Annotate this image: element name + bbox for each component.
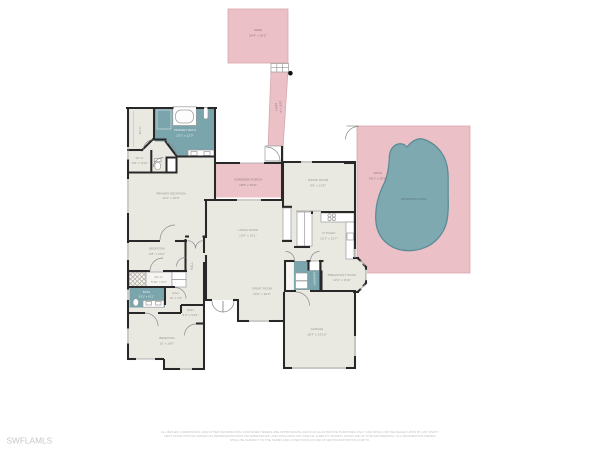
svg-text:LAUNDRY: LAUNDRY bbox=[313, 271, 317, 285]
svg-text:BREAKFAST NOOK: BREAKFAST NOOK bbox=[328, 273, 357, 277]
svg-text:W.I.C.: W.I.C. bbox=[138, 126, 142, 135]
svg-text:19'5" x 9'10": 19'5" x 9'10" bbox=[239, 183, 257, 187]
svg-text:SWFLAMLS: SWFLAMLS bbox=[7, 436, 53, 446]
svg-text:5'10" x 5'3": 5'10" x 5'3" bbox=[151, 280, 167, 284]
svg-text:10'1" x 12'3": 10'1" x 12'3" bbox=[176, 134, 194, 138]
svg-text:50'1" x 28'5": 50'1" x 28'5" bbox=[369, 177, 387, 181]
svg-text:HALL: HALL bbox=[190, 262, 194, 271]
svg-text:HALL: HALL bbox=[172, 291, 180, 295]
svg-text:18'4" x 19'10": 18'4" x 19'10" bbox=[307, 333, 327, 337]
svg-text:11'6" x 15'5": 11'6" x 15'5" bbox=[162, 196, 180, 200]
svg-text:SHED: SHED bbox=[254, 28, 262, 32]
svg-text:10' x 3'4": 10' x 3'4" bbox=[169, 296, 182, 300]
svg-text:BEDROOM: BEDROOM bbox=[159, 336, 175, 340]
svg-text:PATIO: PATIO bbox=[374, 171, 383, 175]
svg-text:KITCHEN: KITCHEN bbox=[323, 231, 336, 235]
svg-text:GREAT ROOM: GREAT ROOM bbox=[252, 287, 272, 291]
svg-text:10' x 19'6": 10' x 19'6" bbox=[160, 342, 175, 346]
svg-text:PATH: PATH bbox=[274, 103, 279, 111]
svg-text:10'1" x 12'7": 10'1" x 12'7" bbox=[320, 237, 338, 241]
svg-text:DINING ROOM: DINING ROOM bbox=[308, 178, 329, 182]
svg-text:SHALL BE SUBJECT TO THE TERMS: SHALL BE SUBJECT TO THE TERMS AND CONDIT… bbox=[230, 438, 370, 442]
svg-text:PRIMARY BATH: PRIMARY BATH bbox=[174, 128, 196, 132]
svg-text:5'6" x 9'10": 5'6" x 9'10" bbox=[132, 161, 148, 165]
svg-text:LIVING ROOM: LIVING ROOM bbox=[238, 228, 258, 232]
svg-text:DEN: DEN bbox=[187, 308, 194, 312]
svg-text:24'4" x 20'2": 24'4" x 20'2" bbox=[249, 34, 267, 38]
svg-text:W.I.C.: W.I.C. bbox=[136, 156, 145, 160]
svg-text:BATH: BATH bbox=[143, 290, 150, 294]
svg-text:PRIMARY BEDROOM: PRIMARY BEDROOM bbox=[156, 192, 186, 196]
svg-text:5'2" x 5'10": 5'2" x 5'10" bbox=[183, 313, 199, 317]
svg-text:9'11" x 4'11": 9'11" x 4'11" bbox=[139, 294, 154, 298]
svg-text:SCREENED PORCH: SCREENED PORCH bbox=[234, 178, 262, 182]
svg-text:9'8" x 10'3": 9'8" x 10'3" bbox=[149, 252, 165, 256]
svg-text:19'5" x 20'6": 19'5" x 20'6" bbox=[253, 292, 271, 296]
svg-text:GARAGE: GARAGE bbox=[311, 327, 324, 331]
svg-text:SWIMMING POOL: SWIMMING POOL bbox=[401, 197, 428, 201]
svg-text:BEDROOM: BEDROOM bbox=[149, 247, 165, 251]
svg-text:9'6" x 13'8": 9'6" x 13'8" bbox=[310, 184, 326, 188]
svg-text:13'6" x 16'1": 13'6" x 16'1" bbox=[239, 234, 257, 238]
svg-text:W.I.C.: W.I.C. bbox=[155, 275, 164, 279]
svg-text:10'1" x 9'10": 10'1" x 9'10" bbox=[333, 278, 351, 282]
